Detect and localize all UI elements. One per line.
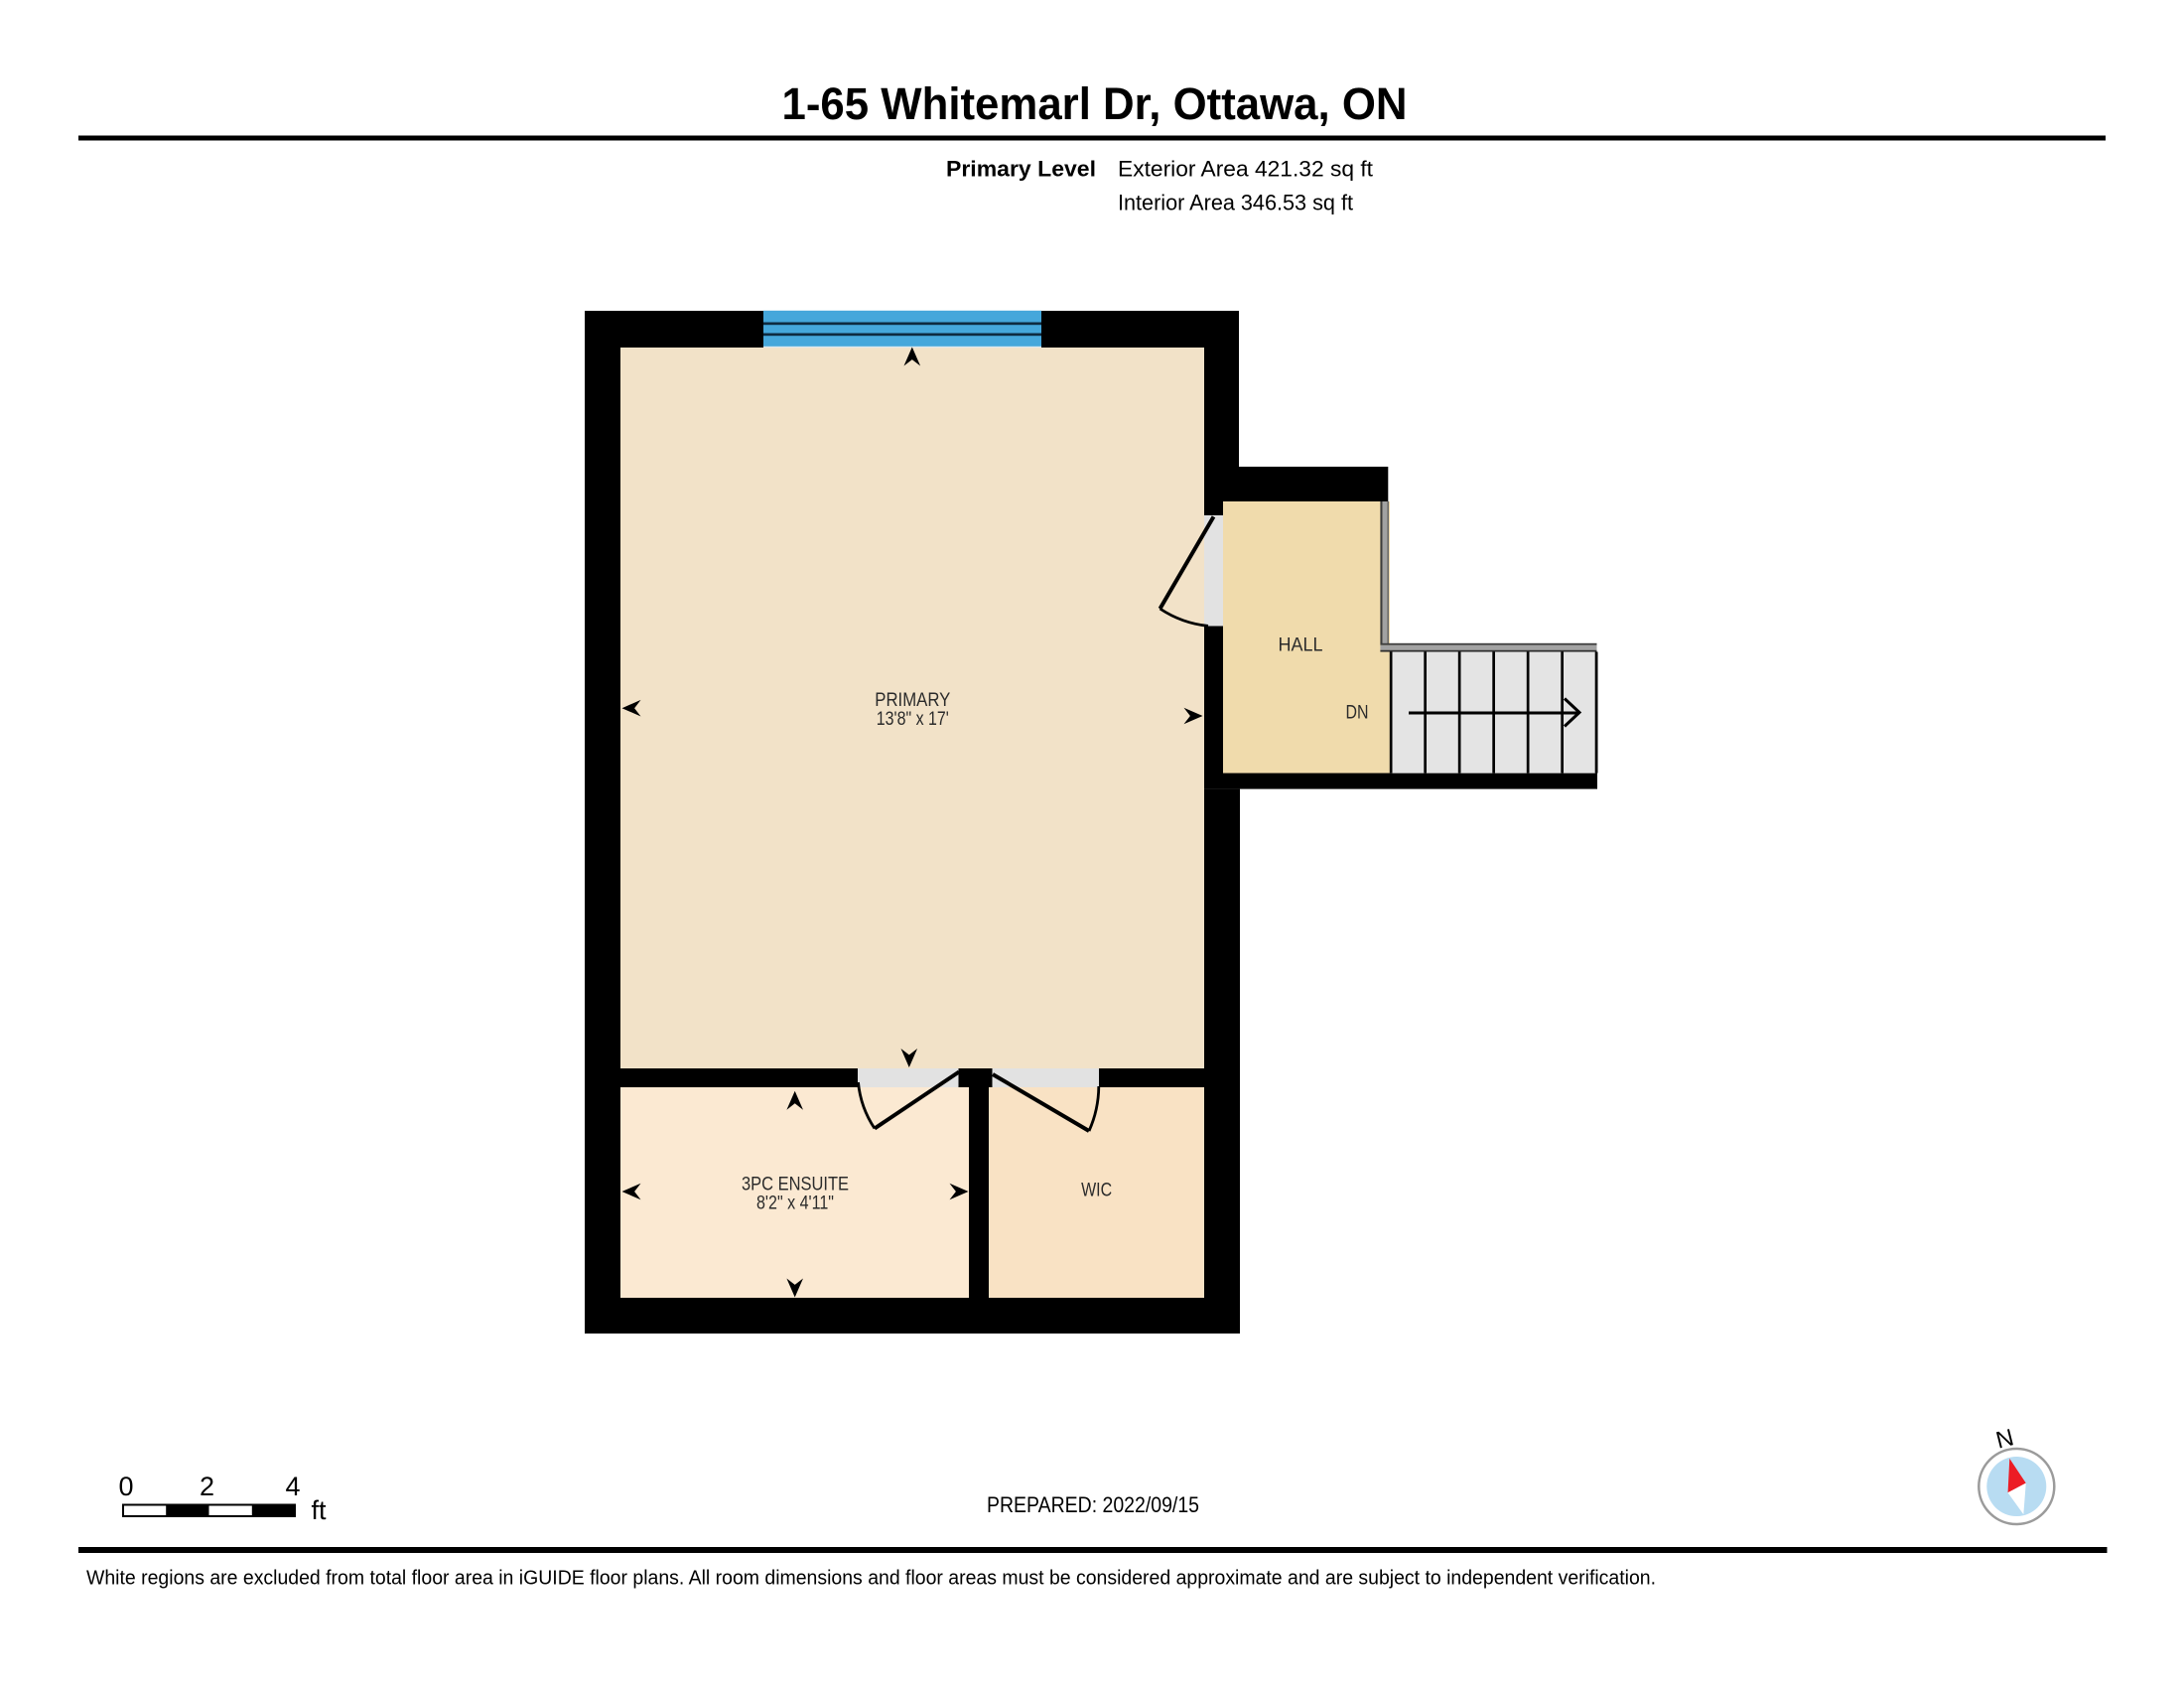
svg-text:Primary Level: Primary Level [946, 157, 1096, 182]
svg-text:1-65 Whitemarl Dr, Ottawa, ON: 1-65 Whitemarl Dr, Ottawa, ON [782, 78, 1408, 129]
svg-text:HALL: HALL [1279, 634, 1323, 656]
svg-text:Exterior Area 421.32 sq ft: Exterior Area 421.32 sq ft [1118, 157, 1374, 182]
svg-text:DN: DN [1346, 702, 1369, 724]
svg-text:2: 2 [200, 1472, 214, 1501]
svg-text:ft: ft [312, 1495, 328, 1525]
svg-text:13'8" x 17': 13'8" x 17' [877, 708, 949, 730]
svg-text:PREPARED: 2022/09/15: PREPARED: 2022/09/15 [987, 1492, 1199, 1517]
svg-text:White regions are excluded fro: White regions are excluded from total fl… [86, 1566, 1656, 1589]
svg-text:WIC: WIC [1081, 1180, 1112, 1201]
svg-text:8'2" x 4'11": 8'2" x 4'11" [756, 1193, 834, 1214]
svg-text:4: 4 [285, 1472, 300, 1501]
svg-text:0: 0 [118, 1472, 133, 1501]
svg-text:Interior Area 346.53 sq ft: Interior Area 346.53 sq ft [1118, 191, 1354, 215]
